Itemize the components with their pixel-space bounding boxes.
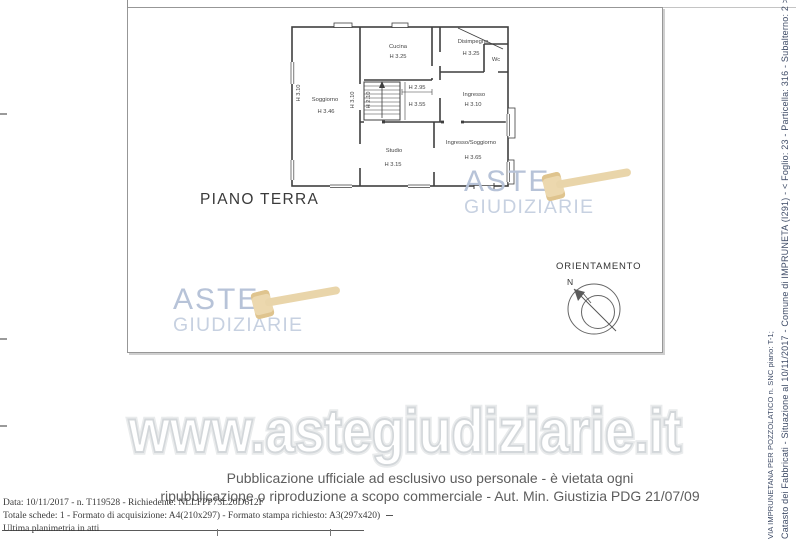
compass-icon (558, 276, 634, 342)
meta-ultima-line: Ultima planimetria in atti (3, 524, 99, 534)
frame-left-extension (127, 0, 128, 8)
meta-dash (386, 515, 393, 516)
gavel-icon (464, 168, 644, 208)
scanned-cadastral-sheet: Cucina H 3.25 Disimpegno H 3.25 Wc Soggi… (0, 0, 800, 539)
room-height-disimpegno: H 3.25 (462, 51, 479, 57)
room-height-ingresso: H 3.10 (464, 102, 481, 108)
room-height-studio: H 3.15 (384, 162, 401, 168)
aste-giudiziarie-watermark: ASTE GIUDIZIARIE (173, 286, 373, 346)
gavel-handle (264, 286, 340, 307)
orientation-title: ORIENTAMENTO (556, 261, 641, 272)
dim-landing-upper: H 2.95 (408, 85, 425, 91)
aste-giudiziarie-watermark: ASTE GIUDIZIARIE (464, 168, 664, 228)
url-watermark: www.astegiudiziarie.it www.astegiudiziar… (118, 394, 693, 472)
room-label-wc: Wc (492, 57, 500, 63)
address-reference-text: VIA IMPRUNETANA PER POZZOLATICO n. SNC p… (766, 331, 775, 539)
room-label-ingresso-soggiorno: Ingresso/Soggiorno (446, 140, 496, 146)
scan-tick (0, 425, 7, 427)
meta-date-line: Data: 10/11/2017 - n. T119528 - Richiede… (3, 498, 264, 508)
dim-left-wall: H 3.10 (296, 84, 302, 101)
room-height-soggiorno: H 3.46 (317, 109, 334, 115)
dim-mid-wall: H 3.10 (350, 91, 356, 108)
official-notice-line1: Pubblicazione ufficiale ad esclusivo uso… (60, 470, 800, 486)
gavel-icon (173, 286, 353, 326)
room-label-ingresso: Ingresso (463, 92, 485, 98)
floor-title: PIANO TERRA (200, 191, 319, 209)
meta-format-line: Totale schede: 1 - Formato di acquisizio… (3, 511, 380, 521)
frame-top-extension (663, 7, 796, 8)
room-height-ingresso-soggiorno: H 3.65 (464, 155, 481, 161)
scan-tick (0, 338, 7, 340)
room-label-studio: Studio (386, 148, 402, 154)
dim-stair: H 2.10 (366, 91, 372, 108)
separator-tick (217, 529, 218, 536)
gavel-handle (555, 168, 631, 189)
room-label-cucina: Cucina (389, 44, 408, 50)
separator-tick (330, 529, 331, 536)
dim-landing-lower: H 3.55 (408, 102, 425, 108)
room-label-soggiorno: Soggiorno (312, 97, 338, 103)
room-label-disimpegno: Disimpegno (458, 39, 489, 45)
cadastral-reference-text: Catasto dei Fabbricati - Situazione al 1… (780, 0, 790, 539)
url-watermark-text: www.astegiudiziarie.it (128, 397, 682, 465)
scan-tick (0, 113, 7, 115)
room-height-cucina: H 3.25 (389, 54, 406, 60)
